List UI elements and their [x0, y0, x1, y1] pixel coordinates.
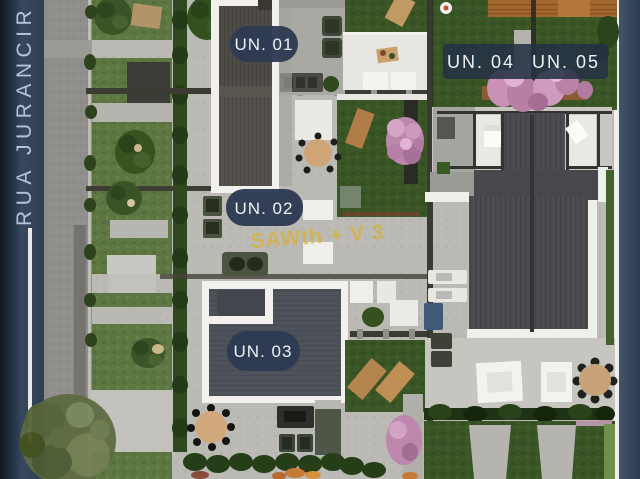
svg-text:UN. 03: UN. 03 — [234, 342, 293, 361]
svg-text:UN. 05: UN. 05 — [532, 52, 600, 72]
svg-text:UN. 01: UN. 01 — [235, 35, 294, 54]
svg-text:UN. 04: UN. 04 — [447, 52, 515, 72]
svg-text:UN. 02: UN. 02 — [235, 199, 294, 218]
svg-text:RUA JURANCIR: RUA JURANCIR — [13, 5, 36, 226]
